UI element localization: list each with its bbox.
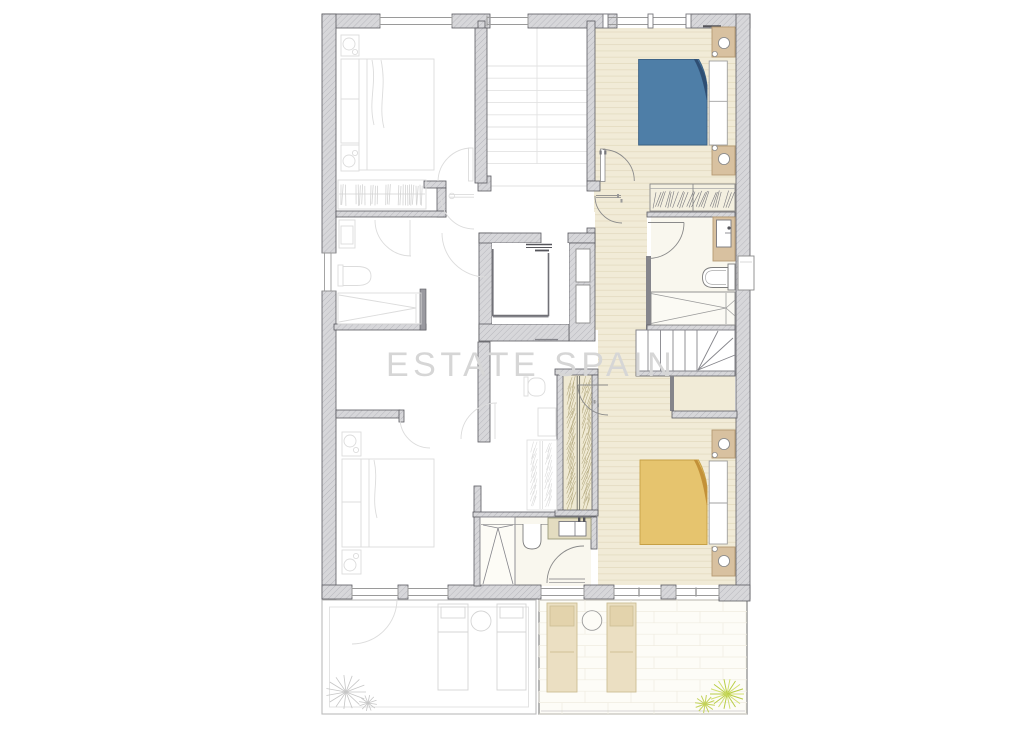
svg-text:ESTATE SPAIN: ESTATE SPAIN <box>386 346 676 384</box>
